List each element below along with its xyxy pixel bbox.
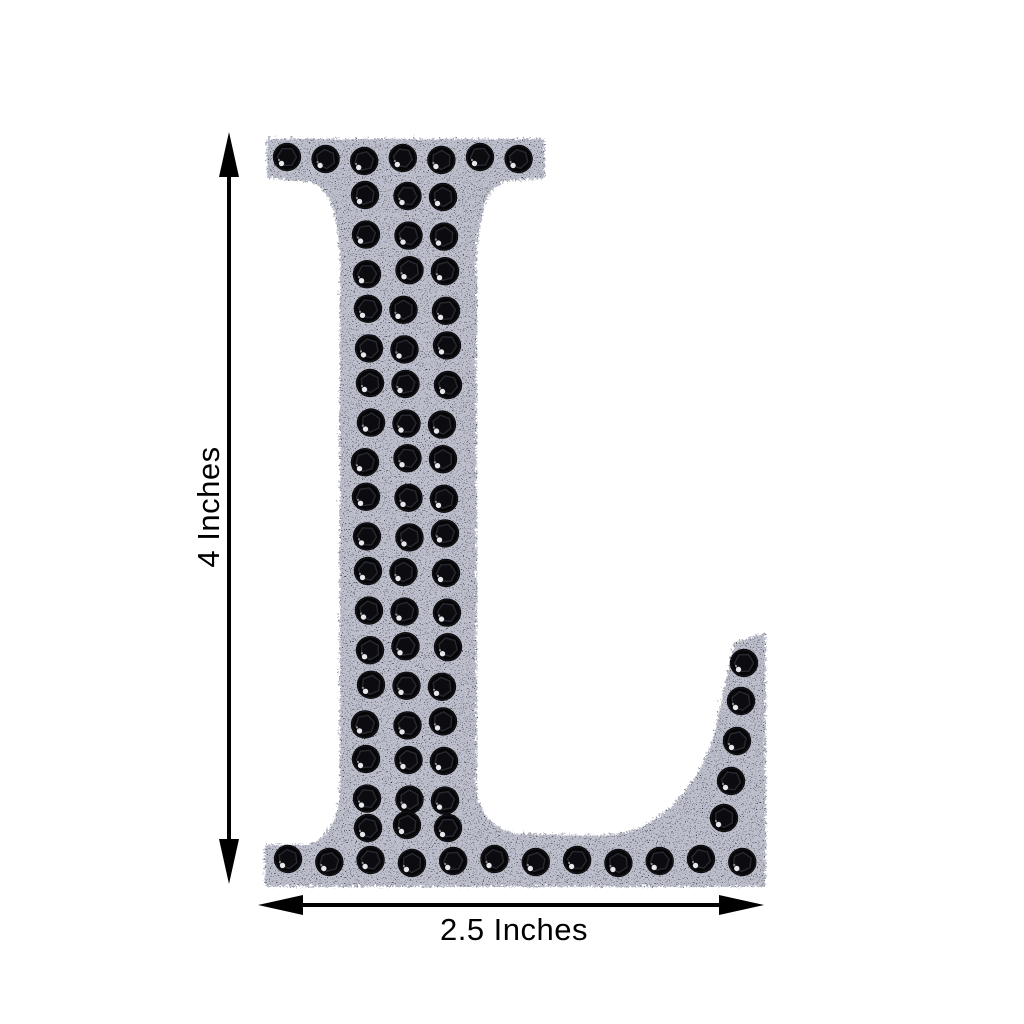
rhinestone — [393, 182, 421, 210]
width-arrow-head-left-icon — [258, 895, 303, 915]
rhinestone — [352, 220, 380, 248]
rhinestone — [353, 784, 381, 812]
product-dimension-diagram: 4 Inches 2.5 Inches — [0, 0, 1024, 1024]
rhinestone — [354, 295, 382, 323]
rhinestone — [354, 814, 382, 842]
rhinestone — [727, 687, 755, 715]
rhinestone — [389, 144, 417, 172]
rhinestone — [430, 222, 458, 250]
rhinestone — [431, 257, 459, 285]
rhinestone — [687, 845, 715, 873]
rhinestone — [391, 632, 419, 660]
rhinestone — [351, 710, 379, 738]
rhinestone — [646, 847, 674, 875]
width-dimension-label: 2.5 Inches — [440, 912, 588, 947]
rhinestone — [730, 649, 758, 677]
rhinestone — [522, 848, 550, 876]
rhinestone — [395, 523, 423, 551]
rhinestone — [357, 408, 385, 436]
rhinestone — [352, 745, 380, 773]
rhinestone — [428, 410, 456, 438]
rhinestone — [429, 707, 457, 735]
rhinestone — [466, 143, 494, 171]
rhinestone — [394, 221, 422, 249]
rhinestone — [432, 559, 460, 587]
rhinestone — [391, 370, 419, 398]
rhinestone — [315, 848, 343, 876]
rhinestone — [354, 557, 382, 585]
rhinestone — [428, 673, 456, 701]
rhinestone — [563, 846, 591, 874]
rhinestone — [353, 260, 381, 288]
rhinestone — [393, 711, 421, 739]
rhinestone — [311, 145, 339, 173]
height-dimension-label: 4 Inches — [191, 446, 226, 567]
rhinestone — [427, 146, 455, 174]
rhinestone — [504, 145, 532, 173]
rhinestone — [394, 484, 422, 512]
rhinestone — [728, 848, 756, 876]
rhinestone — [395, 785, 423, 813]
rhinestone — [439, 847, 467, 875]
rhinestone — [390, 335, 418, 363]
rhinestone — [353, 522, 381, 550]
rhinestone — [429, 445, 457, 473]
rhinestone — [357, 671, 385, 699]
height-arrow-head-up-icon — [219, 132, 239, 177]
diagram-canvas: 4 Inches 2.5 Inches — [0, 0, 1024, 1024]
rhinestone — [389, 558, 417, 586]
glitter-foam-body — [263, 137, 764, 885]
rhinestone — [351, 181, 379, 209]
rhinestone — [392, 409, 420, 437]
rhinestone — [394, 746, 422, 774]
width-arrow-head-right-icon — [719, 895, 764, 915]
letter-product-image — [263, 137, 764, 885]
rhinestone — [356, 846, 384, 874]
rhinestone — [717, 767, 745, 795]
rhinestone — [432, 297, 460, 325]
height-arrow-head-down-icon — [219, 839, 239, 884]
rhinestone — [356, 636, 384, 664]
rhinestone — [398, 849, 426, 877]
rhinestone — [430, 747, 458, 775]
rhinestone — [273, 143, 301, 171]
rhinestone — [393, 811, 421, 839]
rhinestone — [274, 845, 302, 873]
rhinestone — [351, 448, 379, 476]
rhinestone — [431, 786, 459, 814]
rhinestone — [434, 371, 462, 399]
rhinestone — [434, 633, 462, 661]
rhinestone — [431, 519, 459, 547]
rhinestone — [393, 444, 421, 472]
rhinestone — [356, 369, 384, 397]
rhinestone — [710, 804, 738, 832]
rhinestone — [355, 334, 383, 362]
rhinestone — [389, 296, 417, 324]
rhinestone — [723, 727, 751, 755]
rhinestone — [430, 485, 458, 513]
rhinestone — [392, 672, 420, 700]
rhinestone — [355, 596, 383, 624]
rhinestone — [433, 331, 461, 359]
rhinestone — [433, 598, 461, 626]
rhinestone — [350, 147, 378, 175]
letter-glyph-shape — [263, 137, 764, 885]
rhinestone — [480, 845, 508, 873]
rhinestone — [390, 597, 418, 625]
rhinestone — [429, 183, 457, 211]
rhinestone — [395, 256, 423, 284]
rhinestone — [434, 814, 462, 842]
rhinestone — [604, 849, 632, 877]
rhinestone — [352, 483, 380, 511]
